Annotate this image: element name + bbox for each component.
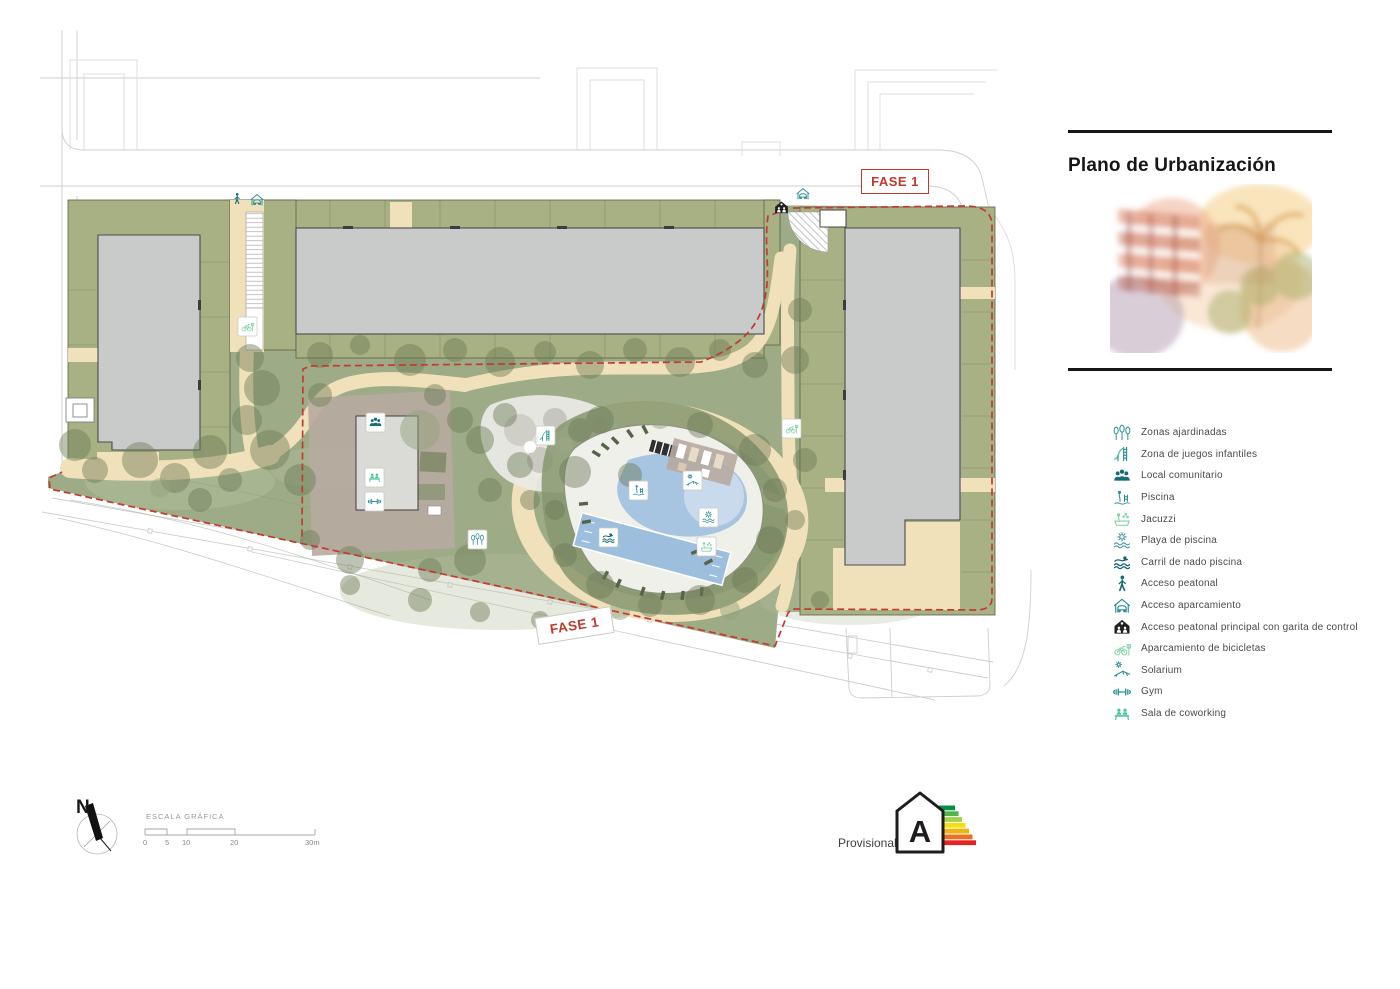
bicycle-parking-icon — [1112, 639, 1132, 659]
scale-tick: 10 — [182, 838, 190, 847]
utility-box — [66, 398, 94, 422]
people-group-icon — [1112, 466, 1132, 486]
guardhouse-icon — [1112, 617, 1132, 637]
legend-item-label: Zonas ajardinadas — [1141, 427, 1227, 438]
legend-item-acceso-aparcamiento: Acceso aparcamiento — [1112, 595, 1382, 617]
legend-item-label: Acceso peatonal — [1141, 578, 1218, 589]
legend-item-carril-nado: Carril de nado piscina — [1112, 552, 1382, 574]
legend-item-label: Acceso peatonal principal con garita de … — [1141, 622, 1358, 633]
legend-item-acceso-peatonal: Acceso peatonal — [1112, 573, 1382, 595]
building-west — [98, 235, 200, 450]
scale-bar — [145, 829, 315, 835]
garage-icon — [1112, 596, 1132, 616]
scale-tick: 5 — [165, 838, 169, 847]
building-render-image — [1110, 184, 1312, 353]
legend-item-label: Piscina — [1141, 492, 1175, 503]
scale-bar-title: ESCALA GRÁFICA — [146, 812, 225, 821]
scale-tick: 0 — [143, 838, 147, 847]
legend-item-label: Sala de coworking — [1141, 708, 1226, 719]
legend-item-label: Aparcamiento de bicicletas — [1141, 643, 1266, 654]
legend-item-solarium: Solarium — [1112, 660, 1382, 682]
legend-item-aparcamiento-bicicletas: Aparcamiento de bicicletas — [1112, 638, 1382, 660]
pedestrian-icon — [1112, 574, 1132, 594]
legend-item-label: Gym — [1141, 686, 1163, 697]
energy-certificate: Provisional A — [838, 790, 988, 862]
swimmer-icon — [1112, 552, 1132, 572]
jacuzzi-icon — [1112, 509, 1132, 529]
coworking-icon — [1112, 704, 1132, 724]
compass-north-label: N — [76, 797, 90, 819]
guard-booth — [820, 210, 846, 227]
page-title: Plano de Urbanización — [1068, 155, 1358, 177]
scale-tick: 30m — [305, 838, 320, 847]
legend-item-label: Solarium — [1141, 665, 1182, 676]
pool-ladder-icon — [1112, 488, 1132, 508]
legend-item-sala-coworking: Sala de coworking — [1112, 703, 1382, 725]
phase-label-top: FASE 1 — [861, 169, 929, 194]
legend-item-local-comunitario: Local comunitario — [1112, 465, 1382, 487]
building-east — [845, 228, 960, 565]
legend-item-acceso-principal-garita: Acceso peatonal principal con garita de … — [1112, 616, 1382, 638]
playground-slide-icon — [1112, 444, 1132, 464]
legend-item-piscina: Piscina — [1112, 487, 1382, 509]
legend-item-zonas-ajardinadas: Zonas ajardinadas — [1112, 422, 1382, 444]
legend-item-label: Playa de piscina — [1141, 535, 1217, 546]
title-rule-bottom — [1068, 368, 1332, 371]
legend-item-label: Local comunitario — [1141, 470, 1223, 481]
legend-item-label: Zona de juegos infantiles — [1141, 449, 1257, 460]
energy-rating-letter: A — [909, 814, 931, 849]
sun-lounger-icon — [1112, 660, 1132, 680]
sun-waves-icon — [1112, 531, 1132, 551]
scale-tick: 20 — [230, 838, 238, 847]
legend-item-label: Carril de nado piscina — [1141, 557, 1242, 568]
energy-status-label: Provisional — [838, 836, 897, 850]
title-rule-top — [1068, 130, 1332, 133]
legend-item-gym: Gym — [1112, 681, 1382, 703]
legend: Zonas ajardinadas Zona de juegos infanti… — [1112, 422, 1382, 724]
dumbbell-icon — [1112, 682, 1132, 702]
legend-item-label: Jacuzzi — [1141, 514, 1176, 525]
legend-item-label: Acceso aparcamiento — [1141, 600, 1241, 611]
building-north — [296, 228, 764, 334]
site-plan-page: FASE 1 FASE 1 N ESCALA GRÁFICA 0 5 10 20… — [0, 0, 1400, 989]
legend-item-juegos-infantiles: Zona de juegos infantiles — [1112, 444, 1382, 466]
legend-item-playa-piscina: Playa de piscina — [1112, 530, 1382, 552]
energy-house-icon: A — [893, 790, 985, 856]
trees-icon — [1112, 423, 1132, 443]
garage-icon — [797, 189, 809, 199]
legend-item-jacuzzi: Jacuzzi — [1112, 508, 1382, 530]
